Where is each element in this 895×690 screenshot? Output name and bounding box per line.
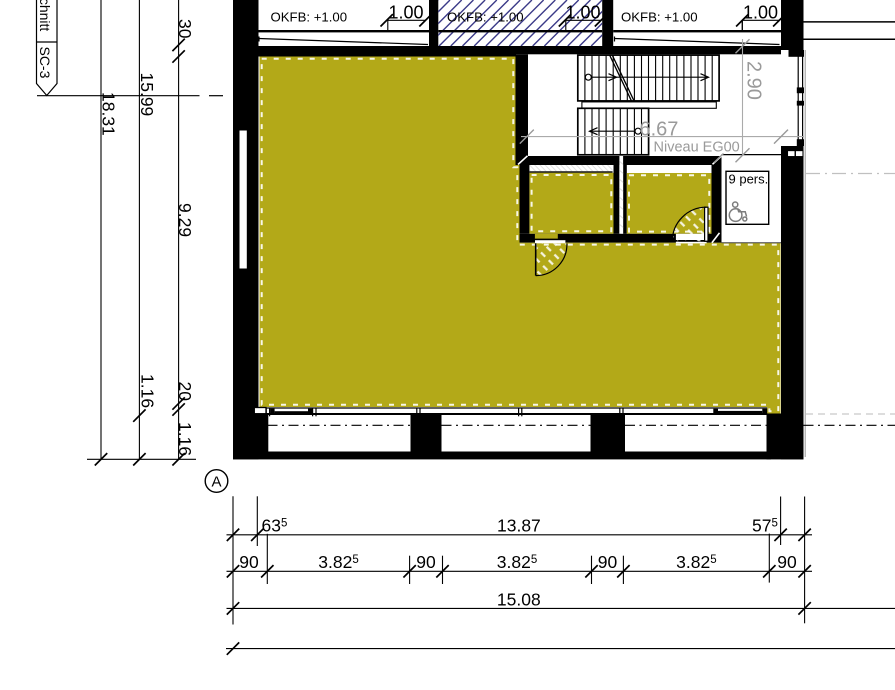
- svg-text:1.00: 1.00: [388, 3, 423, 23]
- svg-text:9.29: 9.29: [175, 203, 195, 237]
- svg-text:1.16: 1.16: [137, 374, 157, 408]
- svg-text:Schnitt: Schnitt: [37, 0, 53, 31]
- svg-text:90: 90: [239, 552, 259, 572]
- svg-text:OKFB: +1.00: OKFB: +1.00: [621, 9, 698, 24]
- svg-text:1.00: 1.00: [565, 3, 600, 23]
- svg-text:15.99: 15.99: [137, 73, 157, 117]
- svg-text:A: A: [211, 473, 221, 490]
- svg-text:OKFB: +1.00: OKFB: +1.00: [447, 9, 524, 24]
- svg-text:1.00: 1.00: [743, 3, 778, 23]
- svg-text:15.08: 15.08: [497, 590, 541, 610]
- svg-text:20: 20: [175, 382, 195, 402]
- svg-text:9 pers.: 9 pers.: [729, 171, 769, 186]
- svg-text:6.67: 6.67: [640, 119, 679, 141]
- svg-text:1.16: 1.16: [175, 422, 195, 456]
- svg-text:13.87: 13.87: [497, 516, 541, 536]
- svg-text:OKFB: +1.00: OKFB: +1.00: [271, 9, 348, 24]
- svg-text:30: 30: [175, 19, 195, 39]
- svg-text:Niveau EG00: Niveau EG00: [654, 140, 740, 156]
- svg-text:90: 90: [598, 552, 618, 572]
- svg-text:2.90: 2.90: [743, 61, 765, 100]
- svg-text:90: 90: [777, 552, 797, 572]
- svg-text:90: 90: [416, 552, 436, 572]
- svg-text:18.31: 18.31: [98, 92, 118, 136]
- svg-text:SC-3: SC-3: [37, 47, 53, 79]
